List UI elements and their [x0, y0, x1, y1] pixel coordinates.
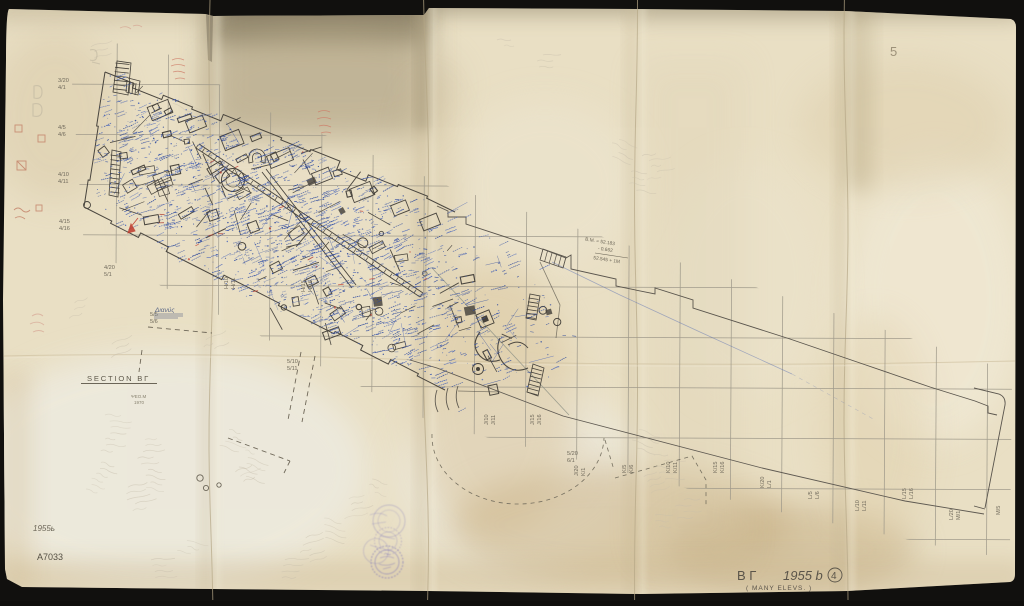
- svg-text:L/5: L/5: [808, 491, 814, 499]
- svg-text:5/10: 5/10: [287, 359, 298, 365]
- svg-text:3/20: 3/20: [58, 78, 69, 84]
- svg-text:L/10: L/10: [855, 500, 861, 511]
- svg-text:J/20: J/20: [574, 465, 580, 476]
- svg-text:1955ь: 1955ь: [33, 524, 55, 533]
- svg-text:H/15: H/15: [301, 280, 307, 292]
- svg-text:L/20: L/20: [949, 509, 955, 520]
- svg-text:M/5: M/5: [996, 506, 1002, 515]
- svg-text:1955 b: 1955 b: [783, 568, 823, 583]
- svg-text:K/15: K/15: [713, 461, 719, 473]
- svg-text:K/1: K/1: [581, 468, 587, 476]
- svg-text:4/16: 4/16: [59, 226, 70, 232]
- svg-text:K/16: K/16: [720, 461, 726, 473]
- svg-text:L/11: L/11: [862, 501, 868, 511]
- svg-text:4/5: 4/5: [58, 125, 66, 131]
- svg-text:Διανύς: Διανύς: [154, 306, 175, 314]
- svg-text:ΨΕΟ.Μ: ΨΕΟ.Μ: [131, 394, 147, 399]
- svg-text:H/10: H/10: [224, 277, 230, 289]
- svg-text:K/11: K/11: [673, 462, 679, 473]
- svg-text:5/1: 5/1: [104, 272, 112, 278]
- svg-text:J/11: J/11: [491, 415, 497, 425]
- svg-text:5/20: 5/20: [567, 451, 578, 457]
- svg-text:J/16: J/16: [537, 414, 543, 425]
- svg-text:L/6: L/6: [815, 491, 821, 499]
- svg-text:6/1: 6/1: [567, 458, 575, 464]
- svg-text:A7033: A7033: [37, 552, 63, 562]
- svg-text:Β Γ: Β Γ: [737, 568, 756, 583]
- svg-text:5/11: 5/11: [287, 366, 297, 372]
- svg-text:H/11: H/11: [231, 278, 237, 289]
- svg-text:K/10: K/10: [666, 461, 672, 473]
- svg-text:J/10: J/10: [484, 414, 490, 425]
- svg-text:L/15: L/15: [902, 488, 908, 499]
- svg-text:K/6: K/6: [629, 465, 635, 473]
- svg-text:L/1: L/1: [767, 480, 773, 488]
- svg-text:4/1: 4/1: [58, 85, 66, 91]
- svg-text:5/6: 5/6: [150, 319, 158, 325]
- svg-text:4: 4: [831, 571, 837, 582]
- svg-text:( ΜΑΝΥ ELEVS. ): ( ΜΑΝΥ ELEVS. ): [746, 585, 812, 592]
- svg-text:H/16: H/16: [308, 280, 314, 292]
- svg-text:SECTION ΒΓ: SECTION ΒΓ: [87, 374, 148, 383]
- svg-text:K/20: K/20: [760, 476, 766, 488]
- svg-text:5: 5: [890, 44, 897, 59]
- svg-text:1970: 1970: [134, 400, 145, 405]
- svg-text:K/5: K/5: [622, 465, 628, 473]
- svg-text:4/20: 4/20: [104, 265, 115, 271]
- svg-text:J/15: J/15: [530, 414, 536, 425]
- svg-text:M/1: M/1: [956, 511, 962, 520]
- svg-text:4/11: 4/11: [58, 179, 68, 185]
- svg-text:4/10: 4/10: [58, 172, 69, 178]
- svg-text:L/16: L/16: [909, 488, 915, 499]
- svg-text:4/6: 4/6: [58, 132, 66, 138]
- svg-text:4/15: 4/15: [59, 219, 70, 225]
